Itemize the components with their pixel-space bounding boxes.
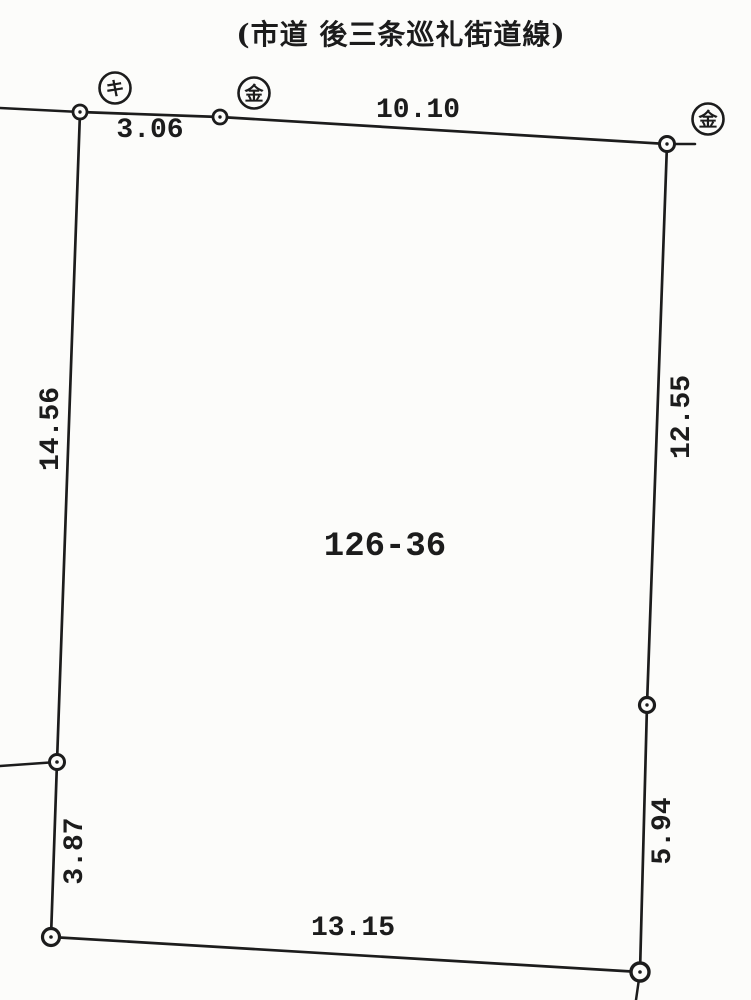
survey-point	[213, 110, 227, 124]
kin-benchmark-marker-top-icon: 金	[239, 78, 270, 109]
survey-point	[50, 755, 65, 770]
dimension-top-west: 3.06	[116, 117, 183, 145]
dimension-east-lower: 5.94	[650, 797, 678, 864]
survey-plat-page: キ 金 金 (市道 後三条巡礼街道線) 126-36 3.06 10.10 14…	[0, 0, 751, 1000]
ki-benchmark-marker-icon: キ	[100, 73, 131, 104]
road-boundary-west-line	[0, 108, 80, 112]
ki-marker-glyph: キ	[105, 78, 124, 100]
kin-marker-glyph: 金	[697, 108, 718, 131]
survey-point	[640, 698, 655, 713]
survey-point	[43, 929, 60, 946]
dimension-top-east: 10.10	[376, 97, 460, 125]
dimension-west-upper: 14.56	[38, 387, 66, 471]
survey-point	[73, 105, 87, 119]
parcel-number-label: 126-36	[324, 530, 446, 564]
survey-point	[631, 963, 649, 981]
road-name-title: (市道 後三条巡礼街道線)	[236, 21, 565, 49]
kin-benchmark-marker-east-icon: 金	[693, 104, 724, 135]
dimension-west-lower: 3.87	[62, 817, 90, 884]
survey-point	[660, 137, 675, 152]
plat-drawing: キ 金 金	[0, 0, 751, 1000]
dimension-east-upper: 12.55	[669, 375, 697, 459]
dimension-south: 13.15	[311, 915, 395, 943]
kin-marker-glyph: 金	[243, 82, 264, 105]
